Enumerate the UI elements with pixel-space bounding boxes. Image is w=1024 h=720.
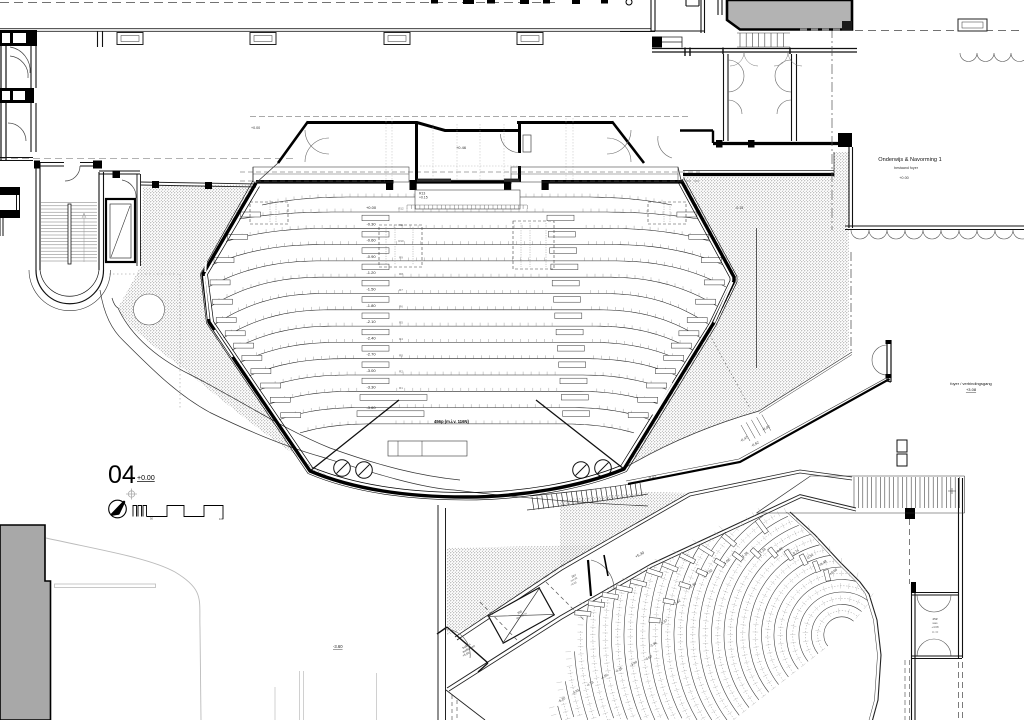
svg-text:+0.00: +0.00	[137, 475, 155, 482]
svg-text:-0.90: -0.90	[366, 254, 376, 259]
svg-text:+4.68: +4.68	[931, 625, 939, 629]
svg-text:Onderwijs & Navorming 1: Onderwijs & Navorming 1	[878, 157, 941, 163]
svg-text:R8: R8	[399, 272, 403, 276]
svg-text:+0.00: +0.00	[366, 205, 377, 210]
svg-text:+0.00: +0.00	[899, 176, 909, 180]
svg-text:-3.60: -3.60	[366, 405, 376, 410]
svg-text:100: 100	[219, 517, 224, 521]
svg-text:+3.08: +3.08	[966, 387, 977, 392]
svg-text:11:30: 11:30	[932, 630, 939, 634]
svg-text:+0.15: +0.15	[419, 196, 428, 200]
svg-text:-2.40: -2.40	[366, 335, 376, 340]
svg-text:04: 04	[108, 461, 136, 489]
svg-text:-1.20: -1.20	[366, 270, 376, 275]
svg-text:456p (m.i.v. 116N): 456p (m.i.v. 116N)	[434, 419, 469, 424]
svg-text:-0.30: -0.30	[366, 221, 376, 226]
svg-text:R9: R9	[399, 256, 403, 260]
svg-text:-1.50: -1.50	[366, 287, 376, 292]
svg-text:-3.60: -3.60	[333, 644, 343, 649]
svg-text:+0.46: +0.46	[456, 145, 467, 150]
svg-text:bestaand foyer: bestaand foyer	[894, 166, 919, 170]
svg-text:R2: R2	[399, 370, 403, 374]
svg-text:-2.70: -2.70	[366, 352, 376, 357]
svg-text:foyer / verbindingsgang: foyer / verbindingsgang	[950, 381, 992, 386]
svg-text:+0.00: +0.00	[251, 126, 260, 130]
svg-text:R1: R1	[399, 386, 403, 390]
svg-text:-0.15: -0.15	[735, 206, 743, 210]
svg-text:-3.00: -3.00	[366, 368, 376, 373]
svg-text:R12: R12	[398, 207, 404, 211]
svg-text:R6: R6	[399, 304, 403, 308]
svg-text:R3: R3	[399, 353, 403, 357]
svg-text:-2.10: -2.10	[366, 319, 376, 324]
svg-text:R5: R5	[399, 321, 403, 325]
svg-text:R4: R4	[399, 337, 403, 341]
svg-text:-1.80: -1.80	[366, 303, 376, 308]
svg-text:R10: R10	[398, 239, 404, 243]
svg-text:-3.30: -3.30	[366, 384, 376, 389]
svg-text:-0.60: -0.60	[366, 238, 376, 243]
svg-text:R7: R7	[399, 288, 403, 292]
